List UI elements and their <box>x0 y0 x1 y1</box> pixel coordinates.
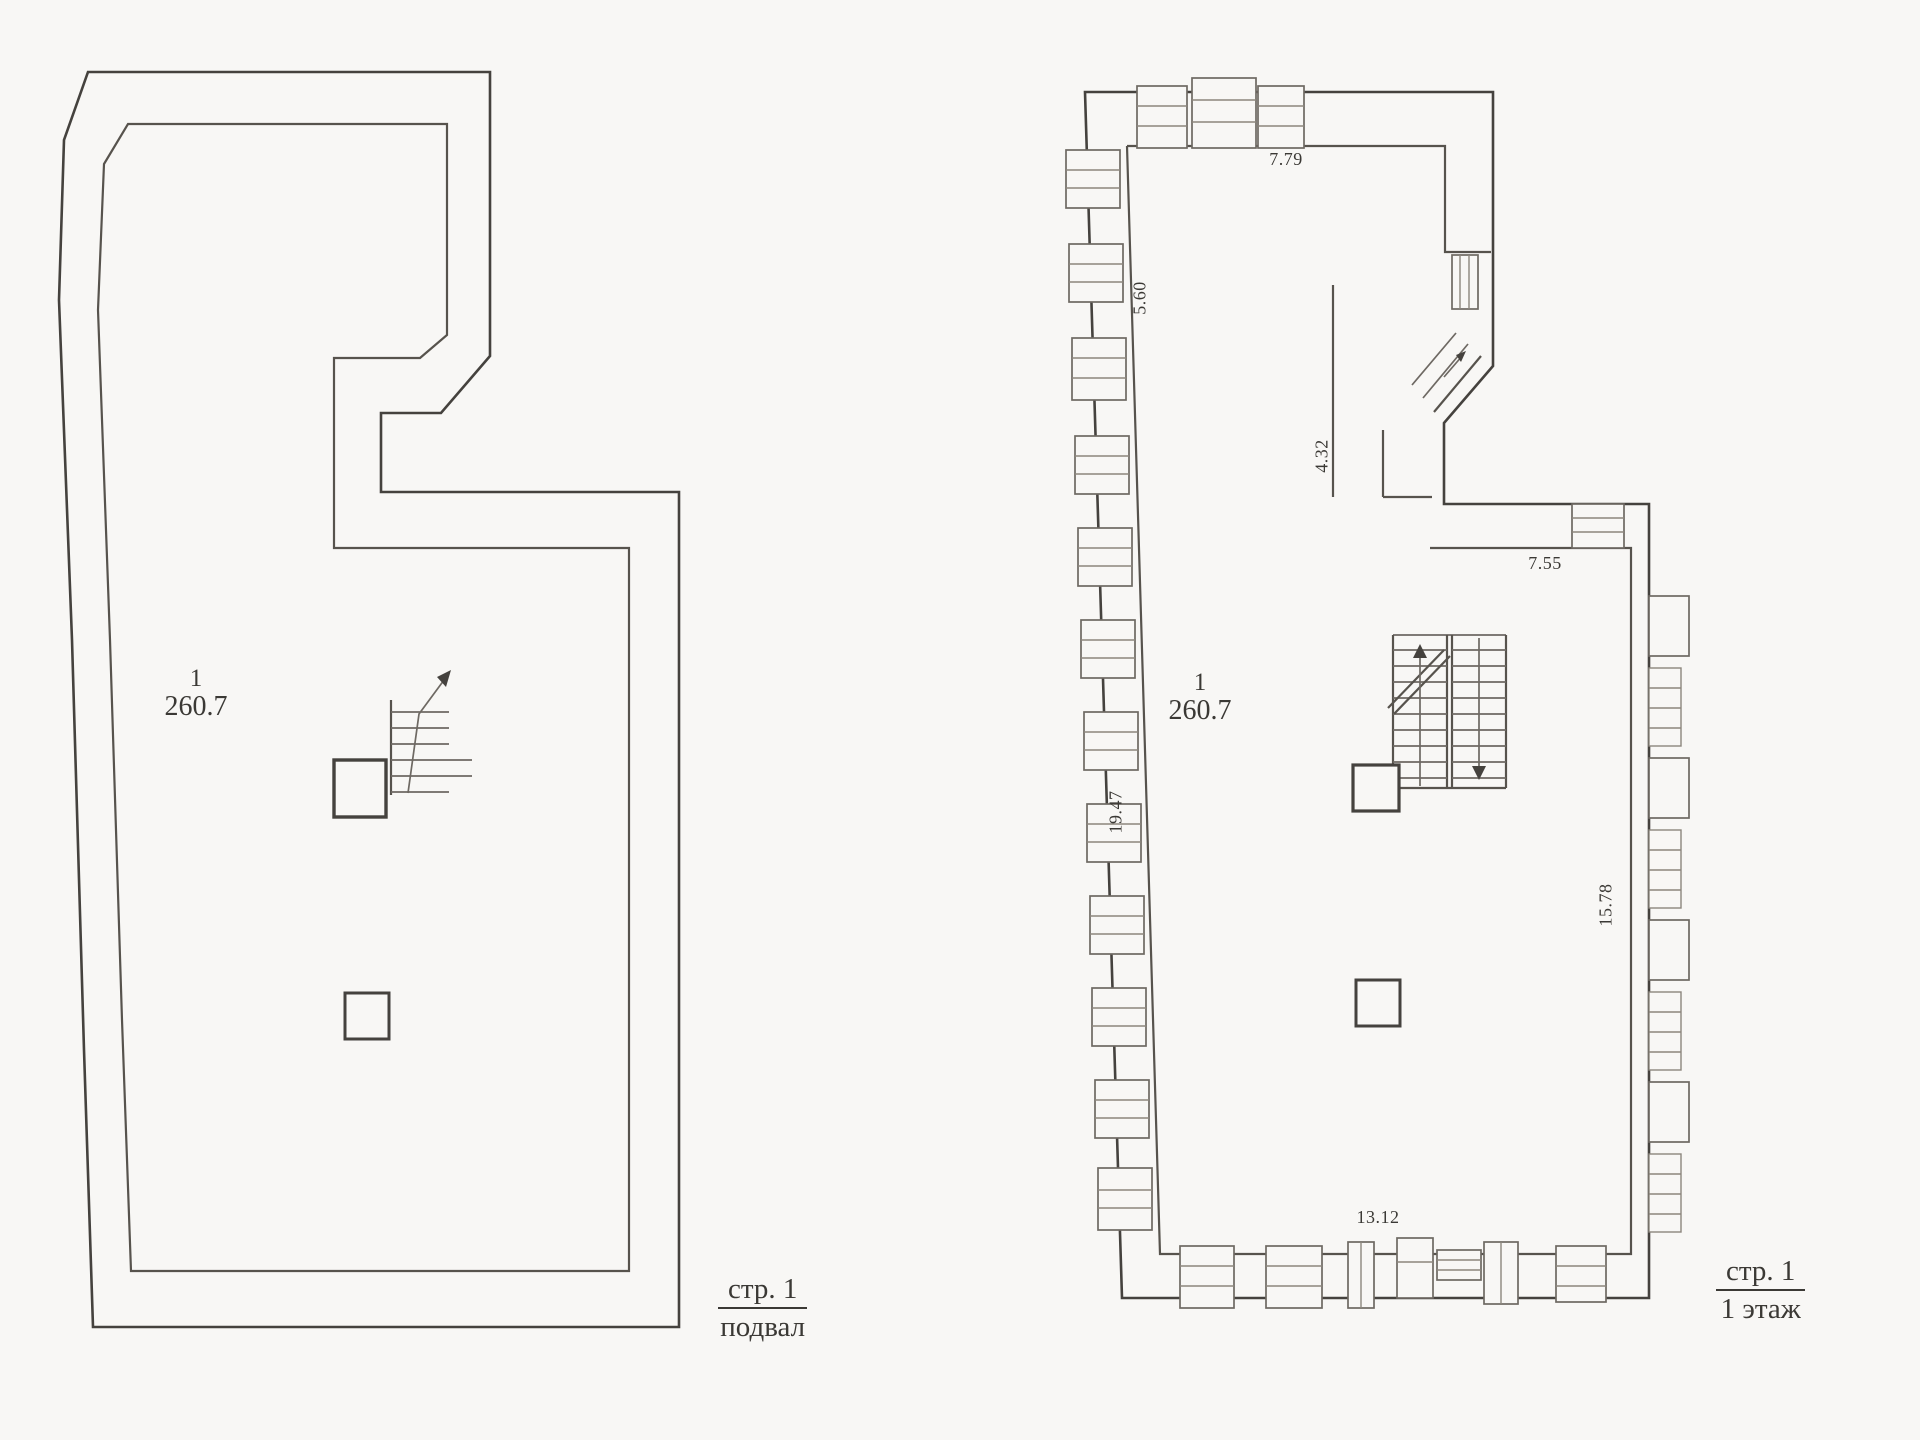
floor-plans-drawing <box>0 0 1920 1440</box>
first-floor-caption-level: 1 этаж <box>1721 1291 1801 1324</box>
first-floor-pillar-square <box>1353 765 1399 811</box>
dimension-label-upper-left: 5.60 <box>1131 281 1150 315</box>
basement-pillar-square <box>334 760 386 817</box>
dimension-label-stair-wall: 4.32 <box>1313 439 1332 473</box>
dimension-label-bottom: 13.12 <box>1338 1208 1418 1227</box>
basement-caption: стр. 1 подвал <box>718 1274 807 1343</box>
basement-room-label: 1 260.7 <box>150 666 242 722</box>
basement-caption-building: стр. 1 <box>718 1274 807 1309</box>
first-floor-room-number: 1 <box>1152 670 1248 696</box>
basement-room-area: 260.7 <box>150 692 242 721</box>
dimension-label-left: 19.47 <box>1107 791 1126 834</box>
scanned-floor-plan-page: 1 260.7 1 260.7 7.79 5.60 4.32 7.55 19.4… <box>0 0 1920 1440</box>
dimension-label-top: 7.79 <box>1246 150 1326 169</box>
basement-stair-icon <box>391 670 472 795</box>
basement-room-number: 1 <box>150 666 242 692</box>
dimension-label-right: 15.78 <box>1597 884 1616 927</box>
first-floor-pillar-square-2 <box>1356 980 1400 1026</box>
first-floor-caption-building: стр. 1 <box>1716 1256 1805 1291</box>
first-floor-stair-icon <box>1388 635 1506 788</box>
top-wall-windows <box>1137 78 1304 148</box>
basement-pillar-square-2 <box>345 993 389 1039</box>
first-floor-room-label: 1 260.7 <box>1152 670 1248 726</box>
step-wall-window <box>1572 504 1624 548</box>
upper-right-window <box>1452 255 1478 309</box>
basement-caption-level: подвал <box>720 1309 805 1342</box>
first-floor-room-area: 260.7 <box>1152 696 1248 725</box>
first-floor-caption: стр. 1 1 этаж <box>1716 1256 1805 1325</box>
stair-lobby-wall <box>1333 285 1432 497</box>
dimension-label-upper-right: 7.55 <box>1505 554 1585 573</box>
